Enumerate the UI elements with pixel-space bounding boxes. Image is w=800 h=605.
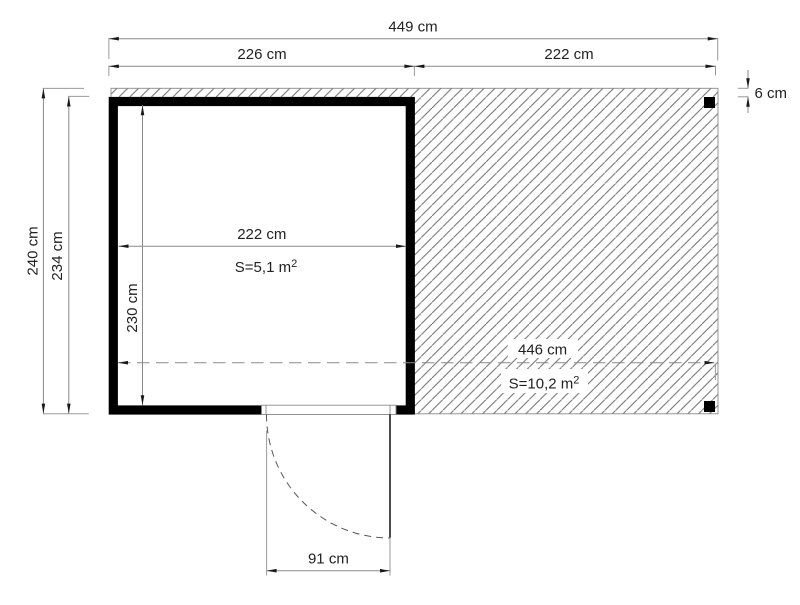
svg-text:449 cm: 449 cm	[388, 19, 437, 36]
svg-text:222 cm: 222 cm	[237, 226, 286, 243]
svg-text:S=5,1 m2: S=5,1 m2	[235, 258, 297, 276]
svg-text:91 cm: 91 cm	[308, 550, 349, 567]
svg-text:222 cm: 222 cm	[544, 46, 593, 63]
svg-text:234 cm: 234 cm	[49, 231, 66, 280]
svg-text:230 cm: 230 cm	[124, 283, 141, 332]
svg-text:446 cm: 446 cm	[518, 342, 567, 359]
svg-text:6 cm: 6 cm	[755, 85, 788, 102]
svg-text:S=10,2 m2: S=10,2 m2	[509, 375, 580, 393]
svg-text:226 cm: 226 cm	[237, 46, 286, 63]
svg-text:240 cm: 240 cm	[24, 226, 41, 275]
